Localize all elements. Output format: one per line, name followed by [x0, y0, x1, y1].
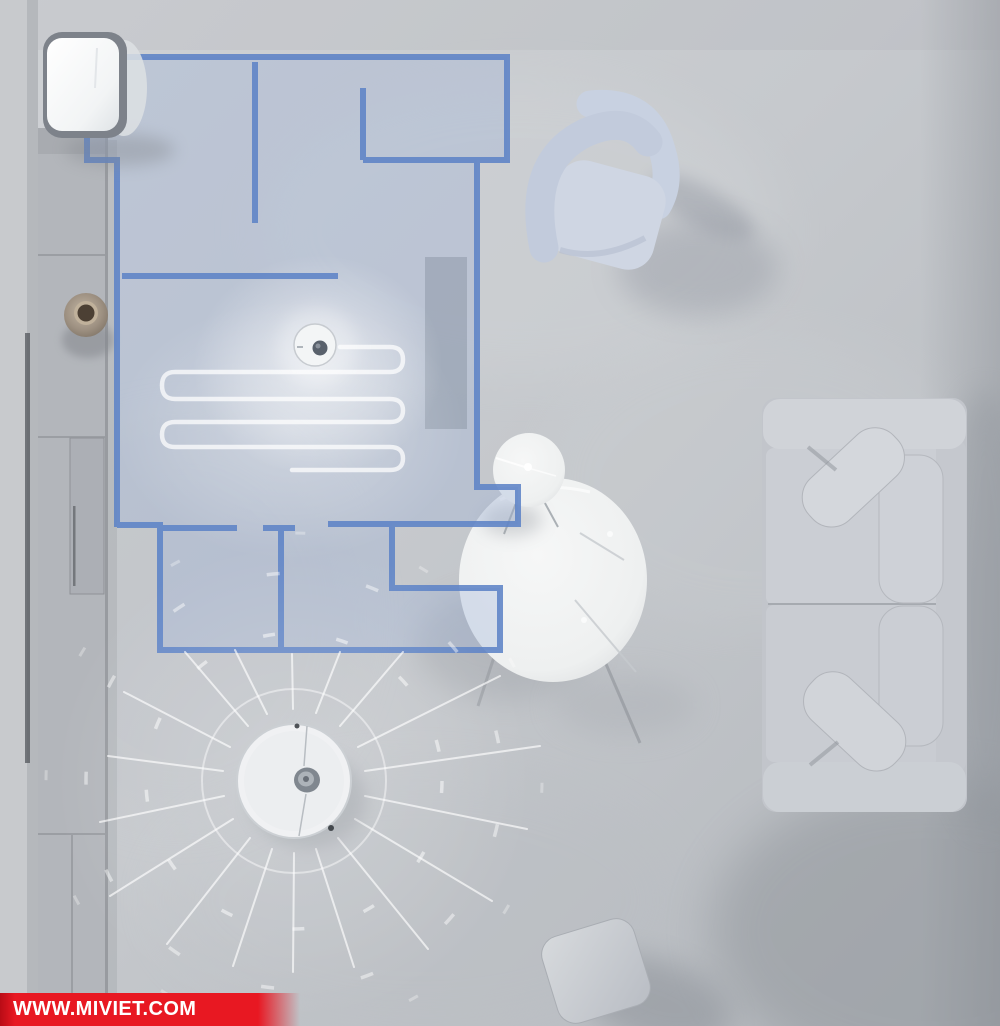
robot-body-inner — [244, 731, 344, 831]
table-leg-cap — [607, 531, 613, 537]
dock-top — [47, 38, 119, 131]
sofa-armrest-bottom — [763, 762, 966, 812]
cabinet-seam — [38, 254, 108, 256]
mapped-robot-position — [277, 307, 357, 387]
dock-shadow — [65, 134, 175, 166]
living-room-scene: WWW.MIVIET.COM — [0, 0, 1000, 1026]
wall-panel — [0, 0, 27, 1026]
robot-sensor — [328, 825, 334, 831]
robot-sensor — [295, 724, 300, 729]
watermark-banner: WWW.MIVIET.COM — [0, 993, 300, 1026]
watermark-text: WWW.MIVIET.COM — [0, 993, 196, 1026]
panel-gap-shadow — [25, 333, 30, 763]
side-table-center — [524, 463, 532, 471]
cabinet-handle — [73, 506, 76, 586]
scene-canvas — [0, 0, 1000, 1026]
lidar-turret-center — [303, 776, 309, 782]
table-leg-cap — [581, 617, 587, 623]
